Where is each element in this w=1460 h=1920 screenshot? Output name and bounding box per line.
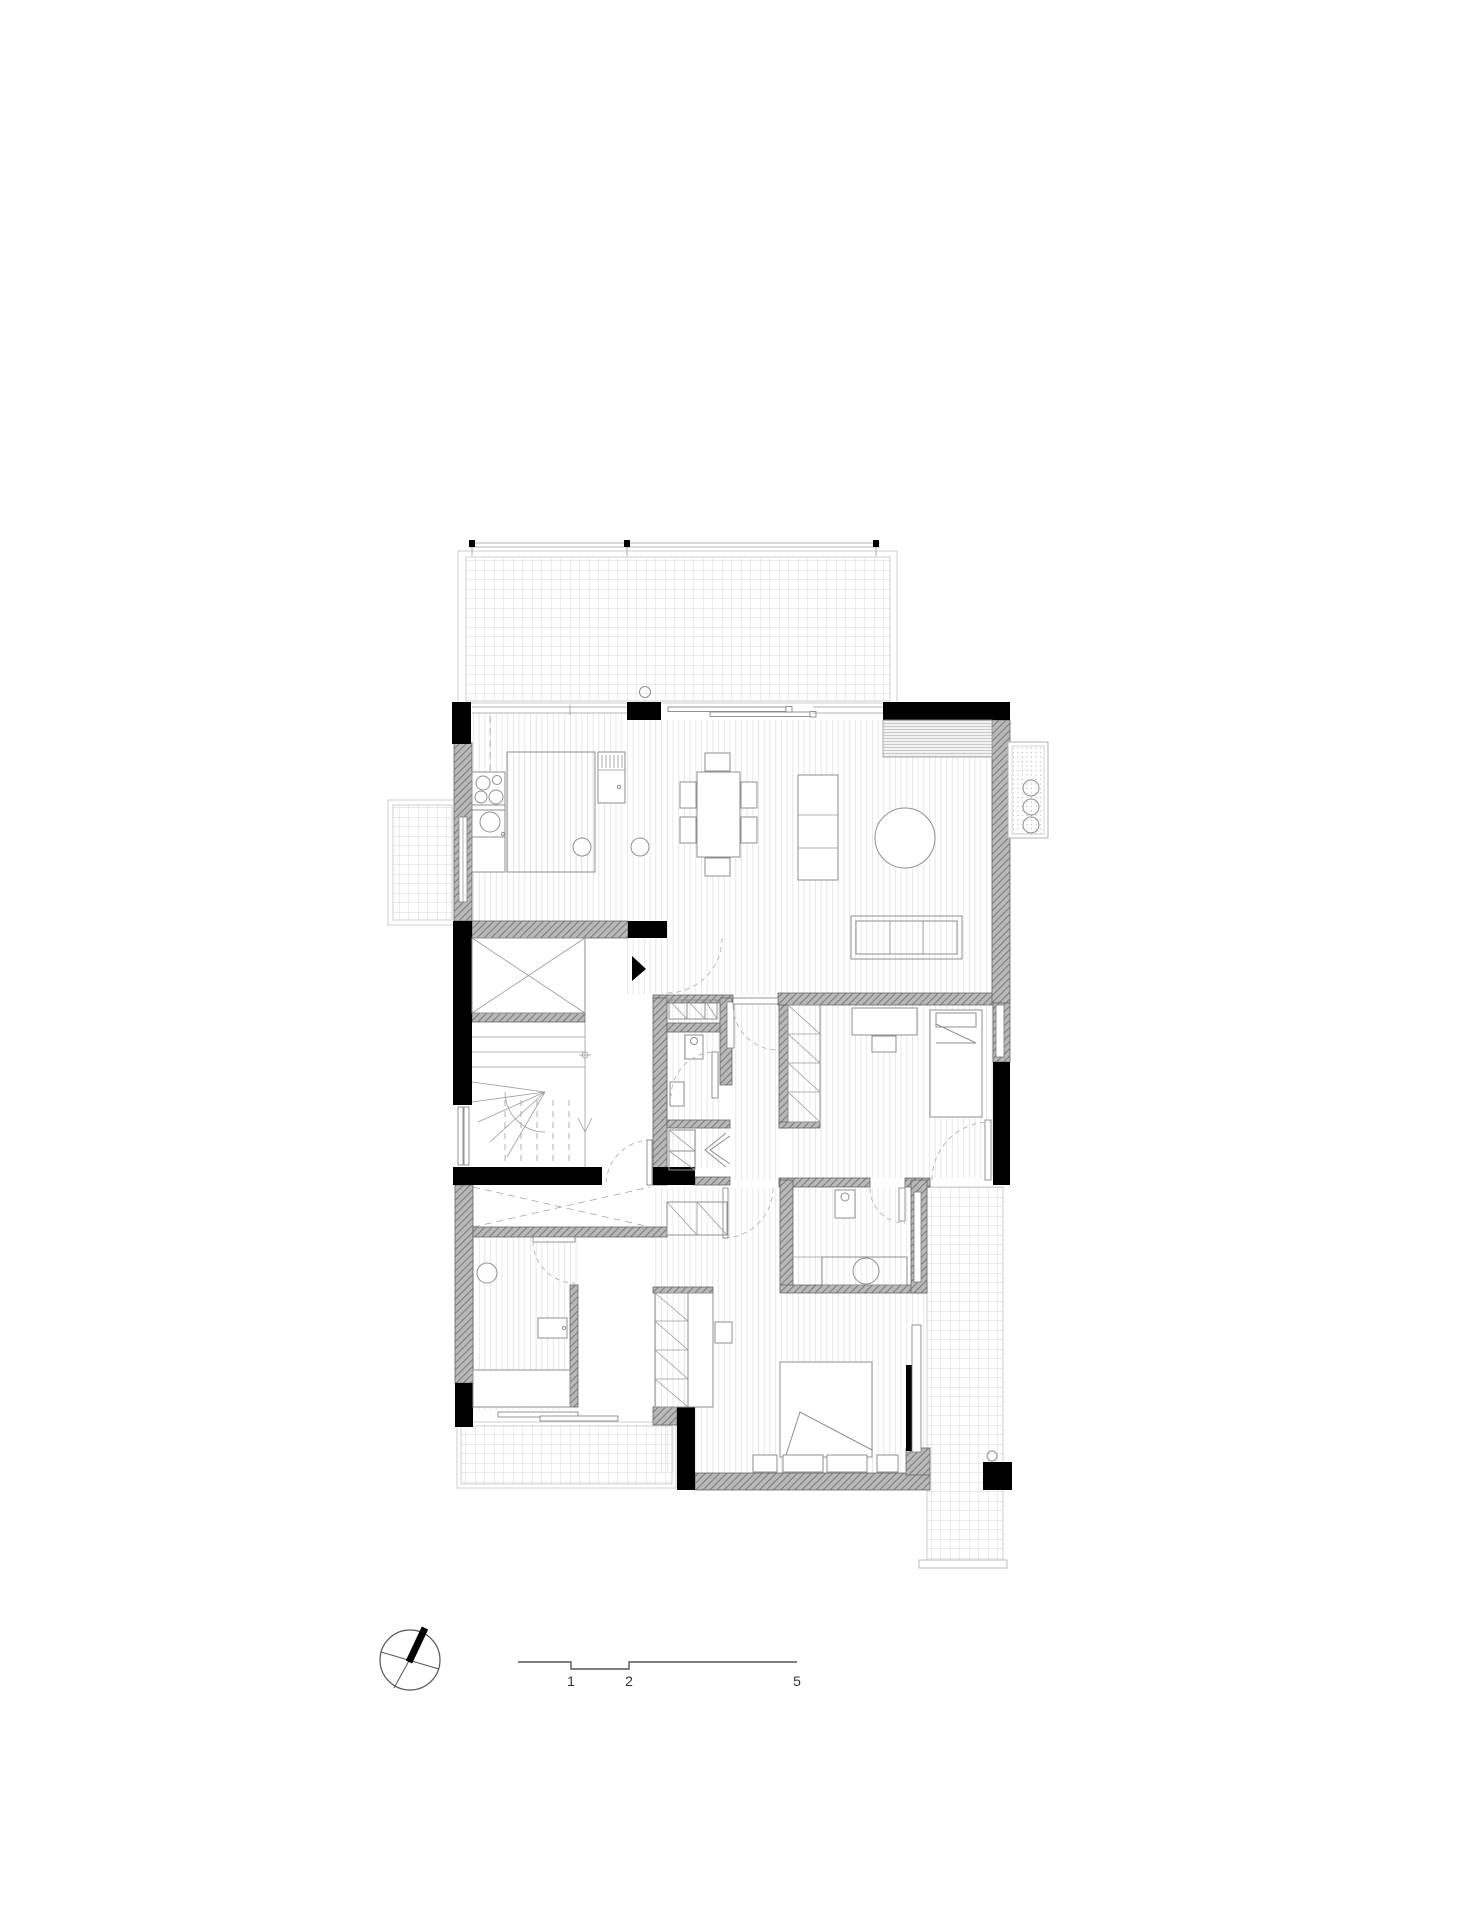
dining-chair	[680, 817, 696, 843]
scale-label-2: 2	[625, 1673, 633, 1689]
scale-label-1: 1	[567, 1673, 575, 1689]
pillow	[827, 1455, 867, 1472]
terrace-door-leaf	[985, 1120, 991, 1180]
right-terrace-step	[919, 1560, 1007, 1568]
dressing-strip	[473, 1187, 650, 1227]
bar-stool	[573, 838, 591, 856]
dining-chair	[680, 782, 696, 808]
bedroom1-bed	[930, 1010, 982, 1117]
master-window	[912, 1325, 921, 1452]
tall-appliance	[598, 752, 625, 803]
guest-sliding-door	[498, 1412, 618, 1421]
chair	[477, 1263, 497, 1283]
guest-door-leaf	[533, 1237, 575, 1242]
upper-terrace-tiles	[466, 557, 890, 701]
wc-door-leaf	[712, 1052, 718, 1098]
hall-lower-door-swing	[606, 1140, 651, 1185]
dining-table	[697, 772, 740, 857]
pillow	[783, 1455, 823, 1472]
sliding-door	[668, 707, 816, 718]
floor-plan-sheet: 1 2 5	[0, 0, 1460, 1920]
dining-chair	[741, 782, 757, 808]
bottom-terrace	[457, 1422, 676, 1488]
scale-label-5: 5	[793, 1673, 801, 1689]
terrace-pillar	[983, 1462, 1012, 1490]
left-terrace	[388, 800, 457, 925]
entry-door	[458, 1107, 469, 1165]
wc-sink	[685, 1035, 703, 1059]
stair-hall	[472, 938, 646, 1167]
nightstand	[877, 1455, 898, 1472]
dining-chair	[741, 817, 757, 843]
side-table	[538, 1318, 567, 1338]
floor-plan-drawing: 1 2 5	[0, 0, 1460, 1920]
corridor-door-leaf	[733, 998, 778, 1004]
dining-chair	[705, 753, 730, 771]
desk-chair	[872, 1036, 896, 1052]
nightstand	[753, 1455, 777, 1472]
wardrobe-knob-unit	[715, 1322, 732, 1343]
bar-stool	[631, 838, 649, 856]
north-arrow-icon	[380, 1628, 440, 1690]
right-terrace	[919, 1187, 1007, 1568]
terrace-railing	[469, 540, 880, 556]
dining-chair	[705, 858, 730, 876]
corridor-floor	[733, 1005, 779, 1180]
window-bench	[883, 720, 992, 757]
bedroom1-window	[996, 1005, 1004, 1057]
desk	[852, 1008, 917, 1035]
staircase	[472, 1022, 592, 1167]
hall-lower-door-leaf	[647, 1140, 652, 1185]
bathroom-window	[914, 1192, 921, 1282]
scale-bar: 1 2 5	[518, 1662, 801, 1689]
daybed	[473, 1370, 570, 1407]
bathroom-sink	[835, 1190, 855, 1218]
outdoor-unit	[1008, 742, 1048, 838]
round-table	[875, 808, 935, 868]
upper-terrace	[458, 540, 897, 703]
shelf-unit	[798, 775, 838, 880]
bathroom-door-leaf	[899, 1188, 905, 1221]
wardrobe-closet	[472, 938, 585, 1013]
